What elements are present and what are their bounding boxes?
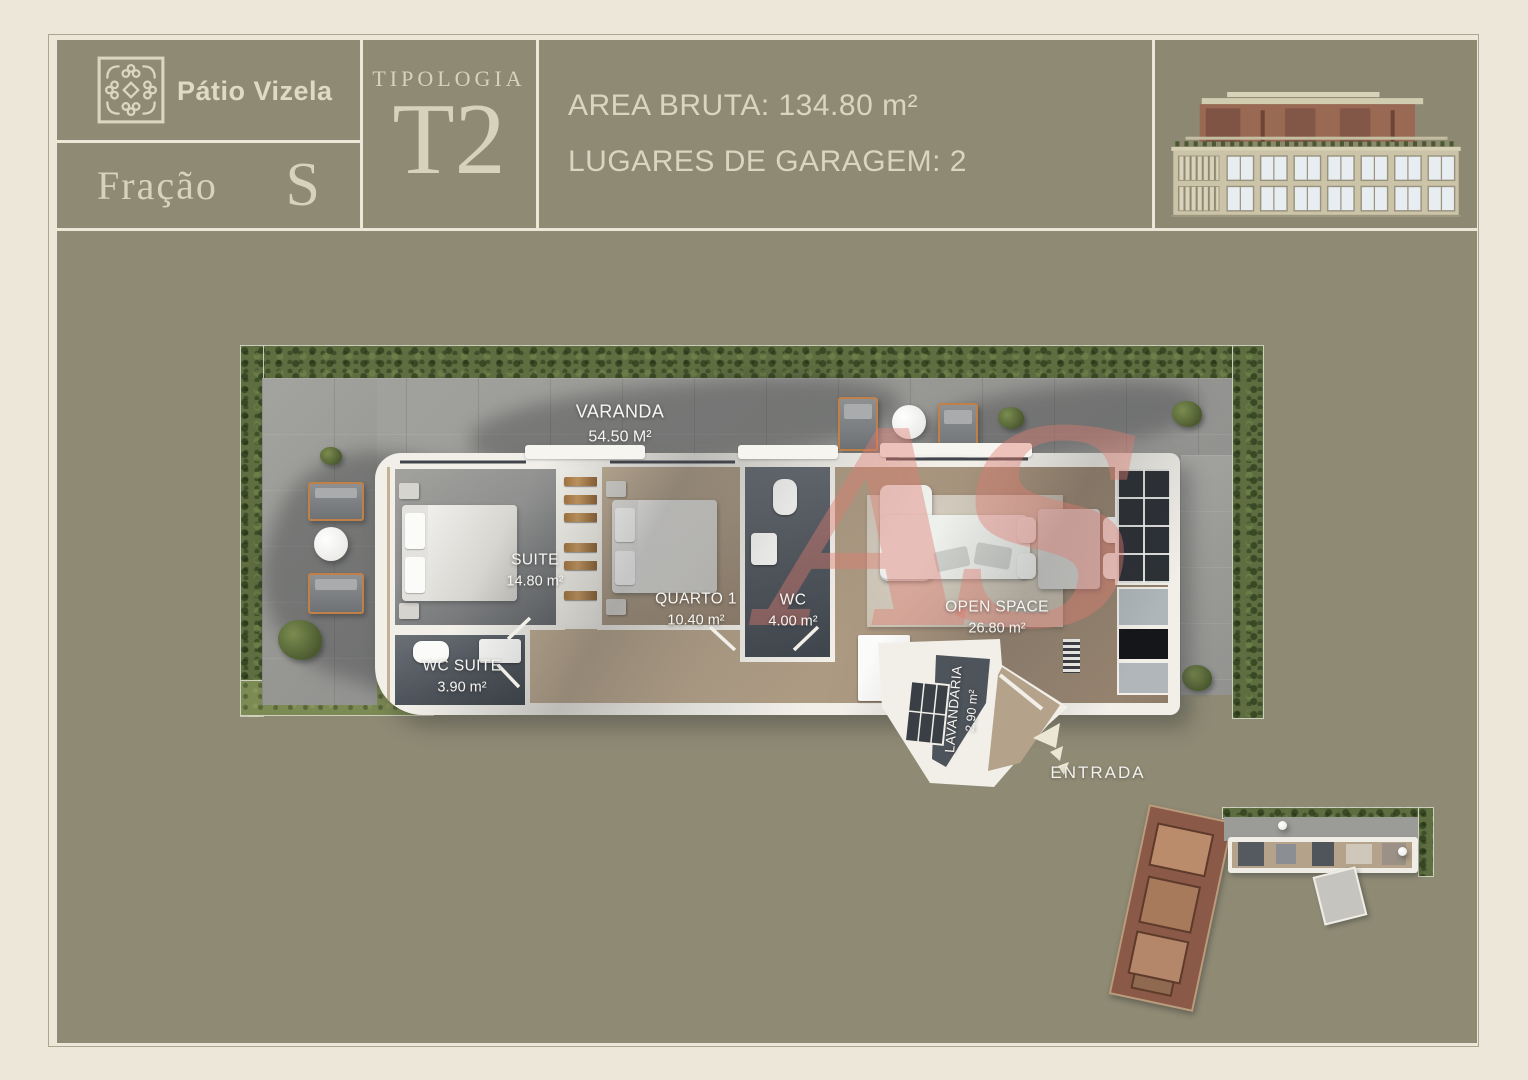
dining-chair: [1017, 553, 1036, 579]
clothes-rack: [564, 561, 598, 570]
pillows: [405, 509, 425, 597]
suite-bed: [402, 505, 517, 601]
clothes-rack: [564, 543, 598, 552]
nightstand: [606, 481, 626, 497]
sun-lounger: [308, 573, 364, 614]
label-wc-suite: WC SUITE 3.90 m²: [423, 655, 502, 700]
dining-table: [1038, 509, 1100, 589]
potted-plant: [278, 620, 322, 660]
label-lavandaria: LAVANDARIA 2.90 m²: [941, 665, 985, 755]
clothes-rack: [564, 495, 598, 504]
label-varanda: VARANDA 54.50 M²: [576, 399, 665, 450]
potted-plant: [320, 447, 342, 465]
potted-plant: [1172, 401, 1202, 427]
clothes-rack: [564, 477, 598, 486]
door-threshold: [880, 443, 1032, 457]
duvet: [428, 505, 517, 601]
kitchen-cabinets: [1115, 467, 1172, 585]
label-quarto1: QUARTO 1 10.40 m²: [655, 588, 737, 633]
label-open-space: OPEN SPACE 26.80 m²: [945, 596, 1049, 641]
kitchen-counter: [1117, 661, 1170, 695]
sun-lounger: [838, 397, 878, 451]
nightstand: [399, 603, 419, 619]
clothes-rack: [564, 591, 598, 600]
nightstand: [399, 483, 419, 499]
kitchen-sink-counter: [1117, 587, 1170, 627]
entry-closet: [858, 635, 910, 701]
toilet: [773, 479, 797, 515]
nightstand: [606, 599, 626, 615]
wardrobe: [560, 467, 602, 625]
dining-chair: [1017, 517, 1036, 543]
washbasin: [751, 533, 777, 565]
round-table: [314, 527, 348, 561]
mini-round-table: [1278, 821, 1287, 830]
label-entrada: ENTRADA: [1050, 763, 1145, 783]
sun-lounger: [308, 482, 364, 521]
round-table: [892, 405, 926, 439]
clothes-rack: [564, 513, 598, 522]
pillows: [615, 504, 635, 589]
vent-grille: [1063, 639, 1080, 673]
potted-plant: [998, 407, 1024, 429]
door-threshold: [738, 445, 838, 459]
duvet: [638, 500, 717, 593]
quarto1-bed: [612, 500, 717, 593]
label-wc: WC 4.00 m²: [768, 589, 817, 634]
mini-round-table: [1398, 847, 1407, 856]
potted-plant: [1182, 665, 1212, 691]
label-suite: SUITE 14.80 m²: [506, 549, 563, 594]
kitchen-hob: [1117, 627, 1170, 661]
brochure-page: Pátio Vizela Fração S TIPOLOGIA T2 AREA …: [0, 0, 1528, 1080]
